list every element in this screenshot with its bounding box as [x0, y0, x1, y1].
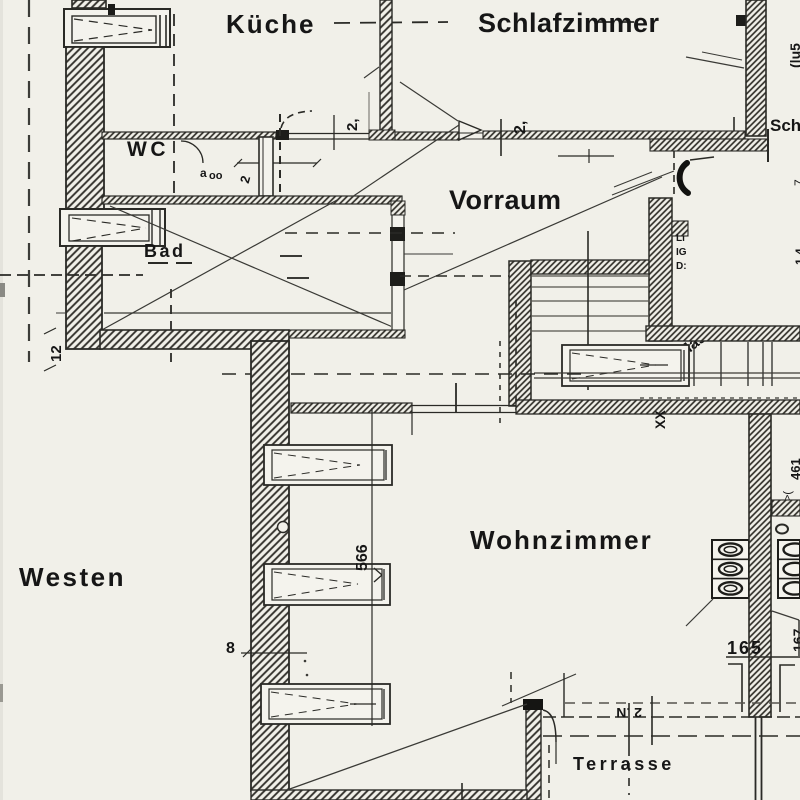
svg-text:>(: >(	[782, 491, 794, 501]
svg-text:2,: 2,	[512, 121, 529, 134]
svg-text:Wohnzimmer: Wohnzimmer	[470, 525, 653, 555]
svg-text:XX: XX	[652, 410, 668, 429]
svg-text:8: 8	[226, 640, 235, 657]
svg-text:1,4: 1,4	[793, 248, 800, 265]
svg-text:Li: Li	[676, 233, 685, 244]
svg-text:2,: 2,	[344, 118, 361, 131]
svg-text:Westen: Westen	[19, 562, 126, 592]
svg-text:a: a	[200, 166, 207, 180]
svg-text:Terrasse: Terrasse	[573, 754, 675, 774]
svg-text:165: 165	[727, 638, 763, 658]
svg-text:oo: oo	[209, 170, 223, 182]
svg-text:12: 12	[48, 345, 65, 362]
svg-text:7,: 7,	[792, 176, 800, 186]
svg-text:566: 566	[354, 544, 371, 571]
svg-text:(|u5: (|u5	[787, 43, 800, 68]
svg-text:Küche: Küche	[226, 9, 315, 39]
svg-text:D:: D:	[676, 261, 687, 272]
svg-text:WC: WC	[127, 138, 169, 161]
svg-text:Schlafzimmer: Schlafzimmer	[478, 8, 660, 38]
svg-text:IG: IG	[676, 247, 687, 258]
svg-text:Vorraum: Vorraum	[449, 185, 562, 215]
svg-text:Bad: Bad	[144, 241, 186, 261]
svg-text:461: 461	[788, 458, 800, 480]
svg-text:Sch: Sch	[770, 116, 800, 135]
